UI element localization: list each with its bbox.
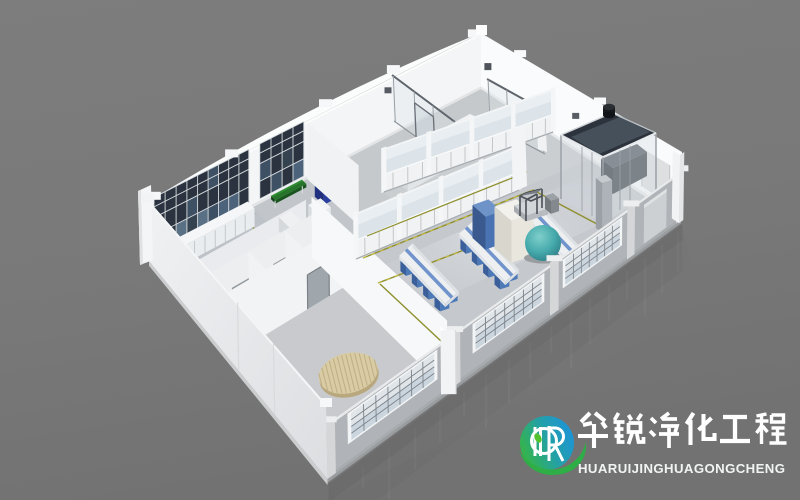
svg-text:HUARUIJINGHUAGONGCHENG: HUARUIJINGHUAGONGCHENG [578,461,785,476]
